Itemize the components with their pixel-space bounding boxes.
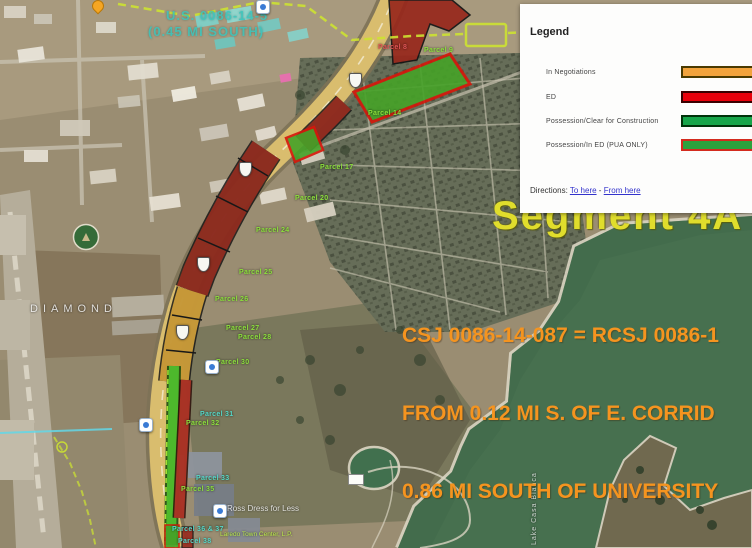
parcel-label: Parcel 27 [226, 325, 259, 332]
corridor-note-line1: U.S. 0086-14-5 [166, 8, 268, 23]
road-sign-badge [348, 474, 364, 485]
directions-prefix: Directions: [530, 186, 568, 195]
place-label-diamond: DIAMOND [30, 303, 117, 315]
place-label-ross: Ross Dress for Less [227, 504, 299, 513]
csj-line1: CSJ 0086-14-087 = RCSJ 0086-1 [402, 323, 752, 349]
parcel-label: Parcel 24 [256, 227, 289, 234]
parcel-label: Parcel 14 [368, 110, 401, 117]
parcel-label: Parcel 31 [200, 411, 233, 418]
csj-line3: 0.86 MI SOUTH OF UNIVERSITY [402, 479, 752, 505]
stadium [74, 225, 99, 250]
parcel-label: Parcel 25 [239, 269, 272, 276]
corridor-note-line2: (0.45 MI SOUTH) [148, 24, 264, 39]
csj-line2: FROM 0.12 MI S. OF E. CORRID [402, 401, 752, 427]
legend-swatch-green [681, 115, 752, 127]
parcel-label: Parcel 38 [178, 538, 211, 545]
csj-note: CSJ 0086-14-087 = RCSJ 0086-1 FROM 0.12 … [402, 271, 752, 548]
map-pin-icon[interactable] [213, 504, 227, 518]
legend-item-possession-clear: Possession/Clear for Construction [546, 115, 658, 128]
legend-item-label: In Negotiations [546, 69, 596, 76]
place-label-town-center: Laredo Town Center, L.P. [220, 531, 292, 538]
satellite-map[interactable]: U.S. 0086-14-5 (0.45 MI SOUTH) Segment 4… [0, 0, 752, 548]
parcel-label: Parcel 35 [181, 486, 214, 493]
parcel-label: Parcel 20 [295, 195, 328, 202]
parcel-label: Parcel 28 [238, 334, 271, 341]
legend-item-possession-in-ed: Possession/In ED (PUA ONLY) [546, 139, 648, 152]
directions-from-here-link[interactable]: From here [604, 186, 641, 195]
legend-swatch-green-red [681, 139, 752, 151]
map-pin-icon[interactable] [205, 360, 219, 374]
legend-item-label: Possession/Clear for Construction [546, 118, 658, 125]
directions-row: Directions: To here - From here [530, 186, 641, 195]
directions-to-here-link[interactable]: To here [570, 186, 597, 195]
legend-panel: Legend In Negotiations ED Possession/Cle… [520, 4, 752, 213]
parcel-label: Parcel 33 [196, 475, 229, 482]
legend-title: Legend [530, 26, 569, 38]
parcel-label: Parcel 30 [216, 359, 249, 366]
legend-item-in-negotiations: In Negotiations [546, 66, 596, 79]
parcel-label: Parcel 17 [320, 164, 353, 171]
legend-swatch-red [681, 91, 752, 103]
map-pin-icon[interactable] [256, 0, 270, 14]
legend-item-label: ED [546, 94, 556, 101]
legend-item-ed: ED [546, 91, 556, 104]
parcel-label: Parcel 9 [424, 47, 453, 54]
directions-separator: - [599, 186, 602, 195]
parcel-label: Parcel 32 [186, 420, 219, 427]
parcel-label: Parcel 26 [215, 296, 248, 303]
legend-item-label: Possession/In ED (PUA ONLY) [546, 142, 648, 149]
legend-swatch-orange [681, 66, 752, 78]
parcel-label: Parcel 36 & 37 [172, 526, 224, 533]
parcel-label: Parcel 8 [378, 44, 407, 51]
map-pin-icon[interactable] [139, 418, 153, 432]
